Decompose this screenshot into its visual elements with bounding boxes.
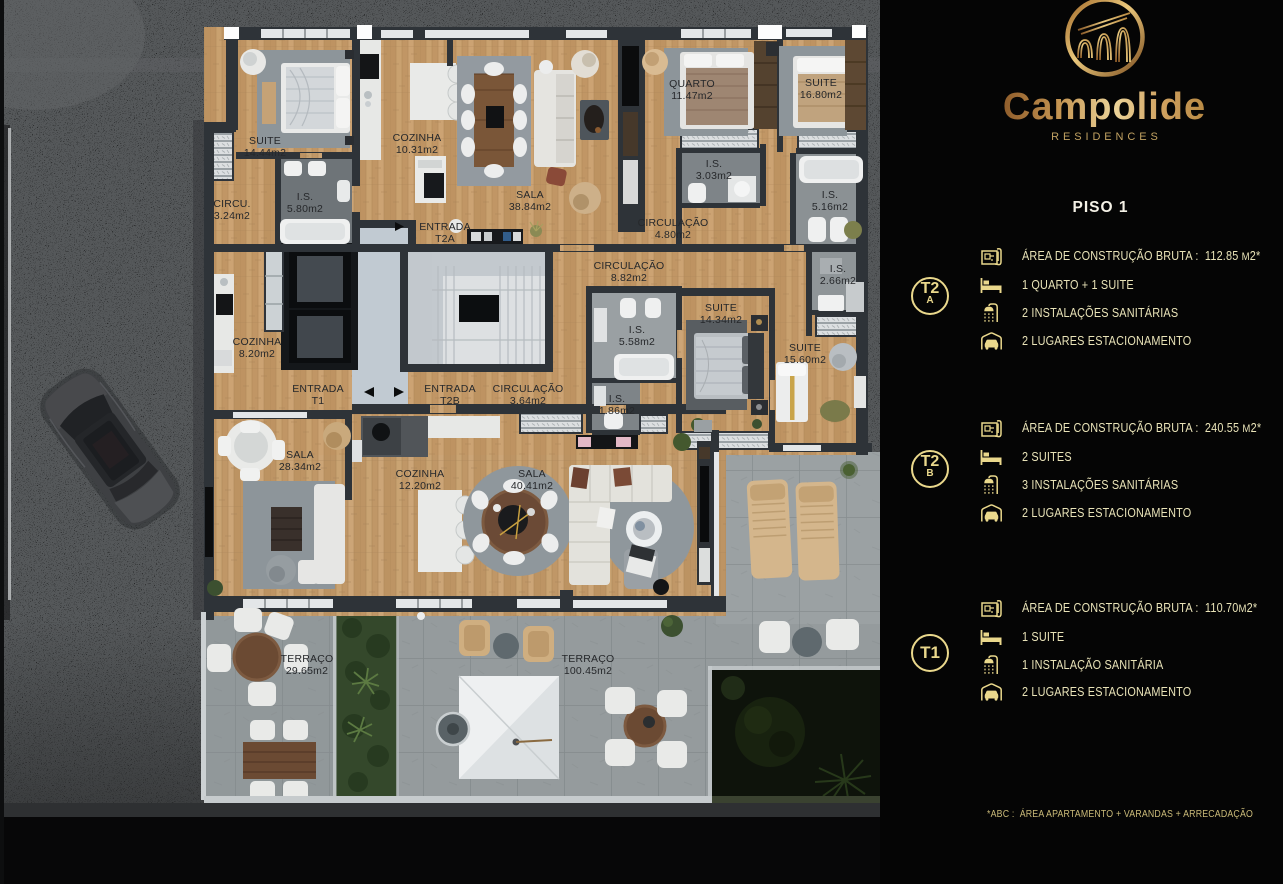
svg-text:I.S.: I.S.	[830, 263, 847, 275]
svg-text:3.64m2: 3.64m2	[510, 395, 546, 407]
svg-text:T2A: T2A	[435, 233, 455, 245]
svg-text:SALA: SALA	[286, 449, 314, 461]
svg-text:5.58m2: 5.58m2	[619, 336, 655, 348]
svg-text:I.S.: I.S.	[706, 158, 723, 170]
svg-text:10.31m2: 10.31m2	[396, 144, 438, 156]
svg-text:SUITE: SUITE	[805, 77, 837, 89]
svg-text:5.16m2: 5.16m2	[812, 201, 848, 213]
svg-text:SUITE: SUITE	[705, 302, 737, 314]
svg-text:CIRCU.: CIRCU.	[213, 198, 250, 210]
svg-text:14.34m2: 14.34m2	[700, 314, 742, 326]
svg-text:T2B: T2B	[440, 395, 460, 407]
svg-text:3.03m2: 3.03m2	[696, 170, 732, 182]
svg-text:TERRAÇO: TERRAÇO	[281, 653, 334, 665]
svg-text:28.34m2: 28.34m2	[279, 461, 321, 473]
svg-text:4.80m2: 4.80m2	[655, 229, 691, 241]
svg-text:CIRCULAÇÃO: CIRCULAÇÃO	[594, 259, 665, 272]
svg-text:I.S.: I.S.	[609, 393, 626, 405]
svg-text:40.41m2: 40.41m2	[511, 480, 553, 492]
svg-text:TERRAÇO: TERRAÇO	[562, 653, 615, 665]
svg-text:I.S.: I.S.	[822, 189, 839, 201]
svg-text:100.45m2: 100.45m2	[564, 665, 612, 677]
svg-text:2.66m2: 2.66m2	[820, 275, 856, 287]
svg-text:SALA: SALA	[518, 468, 546, 480]
svg-text:T1: T1	[312, 395, 325, 407]
svg-text:1.86m2: 1.86m2	[599, 405, 635, 417]
svg-text:14.44m2: 14.44m2	[244, 147, 286, 159]
svg-text:I.S.: I.S.	[629, 324, 646, 336]
svg-text:SUITE: SUITE	[249, 135, 281, 147]
svg-text:CIRCULAÇÃO: CIRCULAÇÃO	[638, 216, 709, 229]
svg-text:ENTRADA: ENTRADA	[424, 383, 476, 395]
svg-text:ENTRADA: ENTRADA	[292, 383, 344, 395]
svg-text:SALA: SALA	[516, 189, 544, 201]
svg-text:CIRCULAÇÃO: CIRCULAÇÃO	[493, 382, 564, 395]
svg-text:12.20m2: 12.20m2	[399, 480, 441, 492]
svg-text:COZINHA: COZINHA	[393, 132, 442, 144]
svg-text:QUARTO: QUARTO	[669, 78, 715, 90]
svg-text:COZINHA: COZINHA	[233, 336, 282, 348]
svg-text:29.65m2: 29.65m2	[286, 665, 328, 677]
svg-text:8.82m2: 8.82m2	[611, 272, 647, 284]
svg-text:SUITE: SUITE	[789, 342, 821, 354]
svg-text:11.47m2: 11.47m2	[671, 90, 712, 102]
svg-text:ENTRADA: ENTRADA	[419, 221, 471, 233]
svg-text:COZINHA: COZINHA	[396, 468, 445, 480]
svg-text:3.24m2: 3.24m2	[214, 210, 250, 222]
svg-text:15.60m2: 15.60m2	[784, 354, 826, 366]
svg-text:16.80m2: 16.80m2	[800, 89, 842, 101]
svg-text:I.S.: I.S.	[297, 191, 314, 203]
svg-text:38.84m2: 38.84m2	[509, 201, 551, 213]
svg-text:5.80m2: 5.80m2	[287, 203, 323, 215]
svg-text:8.20m2: 8.20m2	[239, 348, 275, 360]
